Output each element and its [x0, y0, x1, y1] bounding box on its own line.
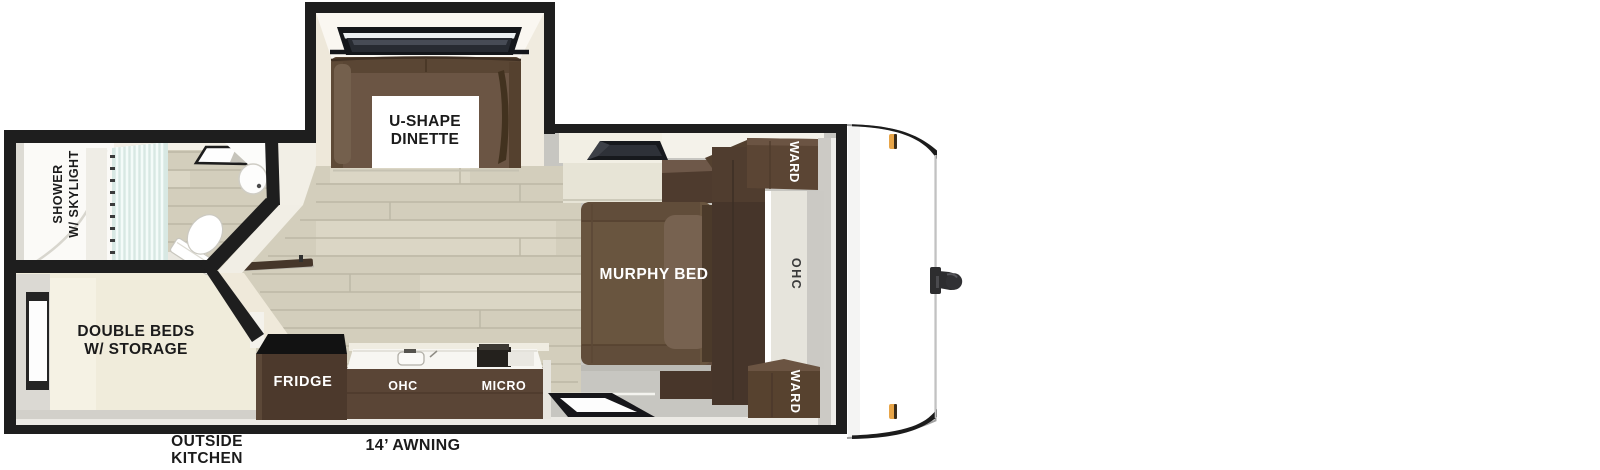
svg-text:U-SHAPE: U-SHAPE — [389, 113, 461, 130]
svg-text:W/ STORAGE: W/ STORAGE — [84, 341, 188, 358]
svg-text:OUTSIDE: OUTSIDE — [171, 433, 243, 450]
svg-text:SHOWER: SHOWER — [51, 164, 65, 223]
svg-text:DOUBLE BEDS: DOUBLE BEDS — [77, 323, 194, 340]
svg-text:WARD: WARD — [788, 370, 803, 415]
svg-text:14’ AWNING: 14’ AWNING — [366, 437, 461, 454]
svg-text:MICRO: MICRO — [482, 379, 527, 393]
svg-text:OHC: OHC — [789, 258, 803, 290]
svg-text:MURPHY BED: MURPHY BED — [600, 266, 709, 283]
svg-text:KITCHEN: KITCHEN — [171, 450, 243, 467]
svg-text:W/ SKYLIGHT: W/ SKYLIGHT — [67, 150, 81, 237]
svg-text:DINETTE: DINETTE — [391, 131, 459, 148]
svg-text:FRIDGE: FRIDGE — [274, 374, 333, 390]
svg-text:WARD: WARD — [787, 141, 802, 183]
svg-text:OHC: OHC — [388, 379, 418, 393]
